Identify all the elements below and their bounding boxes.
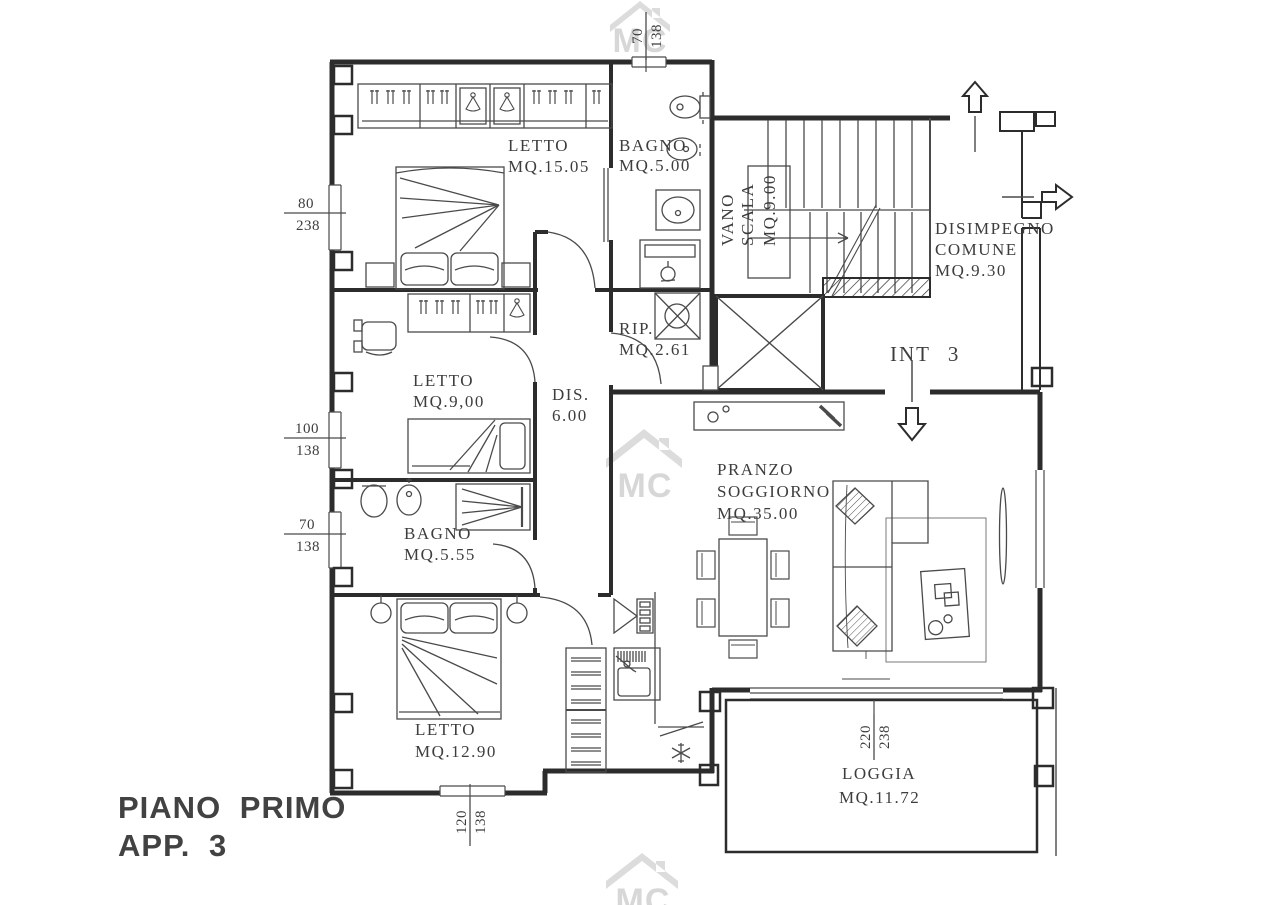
- exit-arrow-icon: [1042, 185, 1072, 209]
- double-bed-icon: [396, 167, 504, 289]
- room-name: BAGNO: [404, 524, 472, 543]
- stair-hatched-wall: [823, 278, 930, 297]
- window-living-right: [1036, 470, 1044, 588]
- label-letto3: LETTO MQ.12.90: [415, 720, 497, 761]
- stair-up-arrow-icon: [963, 82, 987, 112]
- pillar: [334, 770, 352, 788]
- room-area: MQ.5.55: [404, 545, 476, 564]
- dim-left-upper: 80 238: [284, 196, 346, 234]
- elevator-door-notch: [703, 366, 718, 390]
- entry-wall-block-small: [1036, 112, 1055, 126]
- label-dis: DIS. 6.00: [552, 385, 590, 425]
- dim-loggia: 220 238: [858, 714, 893, 760]
- room-area: MQ.35.00: [717, 504, 799, 523]
- door-letto2: [490, 337, 535, 382]
- coffee-table-icon: [921, 569, 970, 640]
- room-area: MQ.5.00: [619, 156, 691, 175]
- sliding-door-bagno1: [604, 168, 608, 242]
- room-area: 6.00: [552, 406, 588, 425]
- shelving-column-icon: [566, 648, 606, 772]
- dim-num: 70: [299, 517, 315, 533]
- label-letto1: LETTO MQ.15.05: [508, 136, 590, 176]
- dim-num: 80: [298, 196, 314, 212]
- door-letto1: [548, 232, 595, 288]
- pillar: [1032, 368, 1052, 386]
- door-letto3: [540, 597, 592, 645]
- dim-left-lower: 70 138: [284, 517, 346, 555]
- watermark-text: MC: [616, 882, 671, 905]
- dim-num: 70: [630, 28, 646, 44]
- dim-num: 220: [858, 725, 874, 749]
- door-swing-mark: [820, 406, 841, 426]
- dining-table-icon: [697, 517, 789, 658]
- label-disimpegno: DISIMPEGNO COMUNE MQ.9.30: [935, 219, 1055, 280]
- nightstand-icon: [366, 263, 394, 287]
- label-letto2: LETTO MQ.9,00: [413, 371, 485, 411]
- room-name-line2: COMUNE: [935, 240, 1018, 259]
- dim-den: 138: [296, 443, 320, 459]
- wardrobe-hanger-cell: [460, 88, 486, 124]
- pillar: [334, 116, 352, 134]
- furniture-living: [694, 402, 1007, 679]
- sliding-door-loggia: [658, 722, 704, 736]
- window-left-lower: [329, 512, 341, 568]
- sink-icon: [614, 648, 660, 700]
- room-name-line2: SOGGIORNO: [717, 482, 831, 501]
- dim-den: 238: [296, 218, 320, 234]
- dim-den: 138: [649, 24, 665, 48]
- furniture-letto1: [358, 84, 612, 289]
- room-area: MQ.15.05: [508, 157, 590, 176]
- curtain-icon: [1000, 488, 1007, 584]
- dim-num: 100: [295, 421, 319, 437]
- furniture-rip: [655, 293, 700, 339]
- room-name: LETTO: [413, 371, 474, 390]
- furniture-kitchen: [614, 592, 704, 763]
- rug-outline: [886, 518, 986, 662]
- pillar: [334, 252, 352, 270]
- window-left-mid: [329, 412, 341, 468]
- room-name: LOGGIA: [842, 764, 916, 783]
- double-bed-icon: [397, 599, 501, 719]
- label-bagno2: BAGNO MQ.5.55: [404, 524, 476, 564]
- room-name: RIP.: [619, 319, 654, 338]
- dim-den: 138: [473, 810, 489, 834]
- room-name: LETTO: [508, 136, 569, 155]
- room-area: MQ.2.61: [619, 340, 691, 359]
- entry-jamb: [1022, 131, 1041, 218]
- sofa-icon: [833, 481, 928, 679]
- entry-wall-block: [1000, 112, 1034, 131]
- room-area: MQ.12.90: [415, 742, 497, 761]
- fridge-snowflake-icon: [672, 743, 690, 763]
- nightstand-icon: [502, 263, 530, 287]
- dim-den: 238: [877, 725, 893, 749]
- label-pranzo: PRANZO SOGGIORNO MQ.35.00: [717, 460, 831, 523]
- wardrobe-dividers: [470, 294, 504, 332]
- floorplan-page: MC MC MC: [0, 0, 1280, 905]
- pillar: [334, 694, 352, 712]
- floorplan-drawing: MC MC MC: [0, 0, 1280, 905]
- dim-bottom: 120 138: [454, 798, 489, 846]
- room-name: DIS.: [552, 385, 590, 404]
- armchair-icon: [354, 320, 396, 355]
- room-name-line2: SCALA: [738, 183, 757, 246]
- toilet-icon: [670, 92, 710, 124]
- room-area: MQ.9,00: [413, 392, 485, 411]
- washing-machine-icon: [655, 293, 700, 339]
- lamp-icon: [507, 595, 527, 623]
- toilet-icon: [361, 485, 387, 517]
- label-loggia: LOGGIA MQ.11.72: [839, 764, 920, 807]
- mc-roof-icon: [606, 429, 682, 468]
- lamp-icon: [371, 595, 391, 623]
- plan-title-line1: PIANO PRIMO: [118, 790, 346, 825]
- window-loggia-sliding: [750, 688, 1003, 699]
- pillar: [334, 66, 352, 84]
- watermark-bottom: MC: [606, 853, 678, 905]
- watermark-text: MC: [618, 467, 673, 505]
- dim-left-mid: 100 138: [284, 421, 346, 459]
- label-bagno1: BAGNO MQ.5.00: [619, 136, 691, 175]
- pillar: [334, 373, 352, 391]
- room-area: MQ.11.72: [839, 788, 920, 807]
- int3-entry-arrow-icon: [899, 408, 925, 440]
- dim-den: 138: [296, 539, 320, 555]
- room-area: MQ.9.00: [760, 174, 779, 246]
- single-bed-icon: [408, 419, 530, 473]
- furniture-bagno1: [640, 92, 710, 288]
- room-area: MQ.9.30: [935, 261, 1007, 280]
- bidet-icon: [397, 478, 421, 515]
- furniture-bagno2: [361, 478, 530, 530]
- plan-title: PIANO PRIMO APP. 3: [118, 790, 346, 863]
- plan-title-line2: APP. 3: [118, 828, 227, 863]
- right-wall-double: [1022, 228, 1040, 390]
- room-name-line1: DISIMPEGNO: [935, 219, 1055, 238]
- elevator-x-icon: [716, 296, 823, 390]
- pillar: [700, 765, 718, 785]
- cooktop-hood-icon: [614, 599, 653, 633]
- label-vano-scala: VANO SCALA MQ.9.00: [718, 174, 779, 246]
- shower-icon: [640, 240, 700, 288]
- sink-icon: [656, 190, 700, 230]
- room-name-line1: VANO: [718, 193, 737, 246]
- pillar: [334, 568, 352, 586]
- dim-num: 120: [454, 810, 470, 834]
- window-left-upper: [329, 185, 341, 250]
- room-name: LETTO: [415, 720, 476, 739]
- room-name-line1: PRANZO: [717, 460, 794, 479]
- window-bottom: [440, 786, 505, 796]
- elevator: [703, 296, 823, 390]
- watermark-middle: MC: [606, 429, 682, 505]
- room-name: BAGNO: [619, 136, 687, 155]
- door-bagno2: [493, 544, 535, 588]
- unit-label: INT 3: [890, 342, 960, 366]
- wardrobe-hanger-cell: [494, 88, 520, 124]
- wall-bottom: [330, 771, 714, 793]
